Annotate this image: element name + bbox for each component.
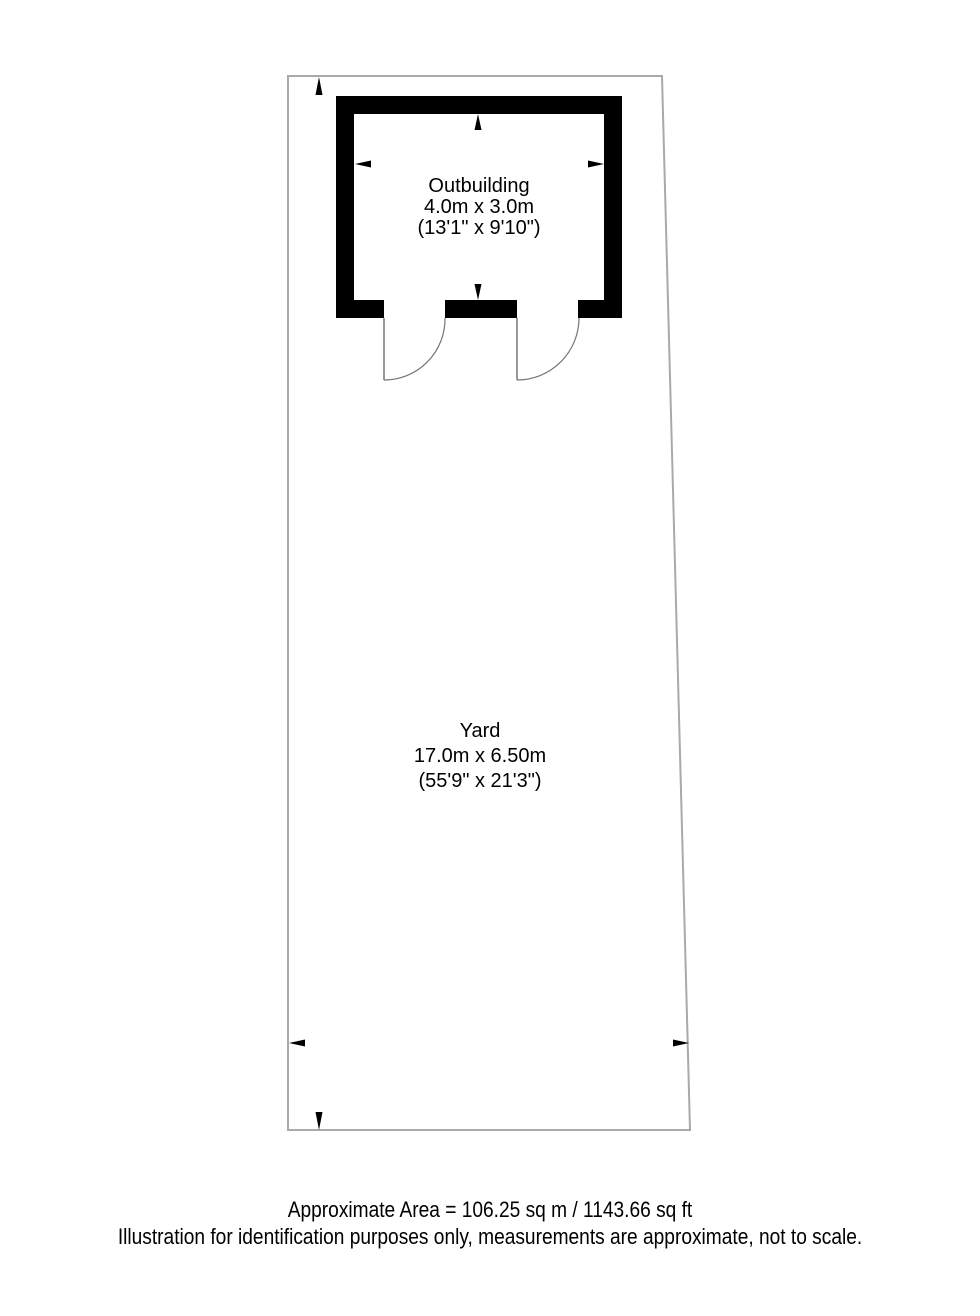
outbuilding-label-block: Outbuilding 4.0m x 3.0m (13'1" x 9'10"): [417, 176, 540, 239]
outbuilding-wall-top: [336, 96, 622, 114]
dimension-arrow-left-icon: [289, 1040, 305, 1047]
dimension-arrow-right-icon: [673, 1040, 689, 1047]
dimension-arrow-left-icon: [355, 161, 371, 168]
dimension-arrow-down-icon: [475, 284, 482, 300]
yard-label-block: Yard 17.0m x 6.50m (55'9" x 21'3"): [414, 719, 546, 794]
outbuilding-wall-bottom-left-segment: [336, 300, 384, 318]
door-swing-arc-left: [384, 318, 445, 380]
door-swing-arc-right: [517, 318, 579, 380]
yard-name: Yard: [414, 719, 546, 744]
outbuilding-wall-bottom-middle-segment: [445, 300, 517, 318]
dimension-arrow-up-icon: [316, 77, 323, 95]
outbuilding-wall-bottom-right-segment: [578, 300, 622, 318]
outbuilding-wall-right: [604, 96, 622, 318]
floorplan-page: Outbuilding 4.0m x 3.0m (13'1" x 9'10") …: [0, 0, 980, 1316]
dimension-arrow-right-icon: [588, 161, 604, 168]
yard-dimensions-metric: 17.0m x 6.50m: [414, 744, 546, 769]
footer-notes: Approximate Area = 106.25 sq m / 1143.66…: [0, 1196, 980, 1250]
outbuilding-name: Outbuilding: [417, 176, 540, 197]
outbuilding-dimensions-imperial: (13'1" x 9'10"): [417, 218, 540, 239]
outbuilding-wall-left: [336, 96, 354, 318]
yard-dimensions-imperial: (55'9" x 21'3"): [414, 769, 546, 794]
dimension-arrow-up-icon: [475, 114, 482, 130]
approximate-area-text: Approximate Area = 106.25 sq m / 1143.66…: [64, 1196, 917, 1223]
dimension-arrow-down-icon: [316, 1112, 323, 1130]
outbuilding-dimensions-metric: 4.0m x 3.0m: [417, 197, 540, 218]
disclaimer-text: Illustration for identification purposes…: [64, 1223, 917, 1250]
